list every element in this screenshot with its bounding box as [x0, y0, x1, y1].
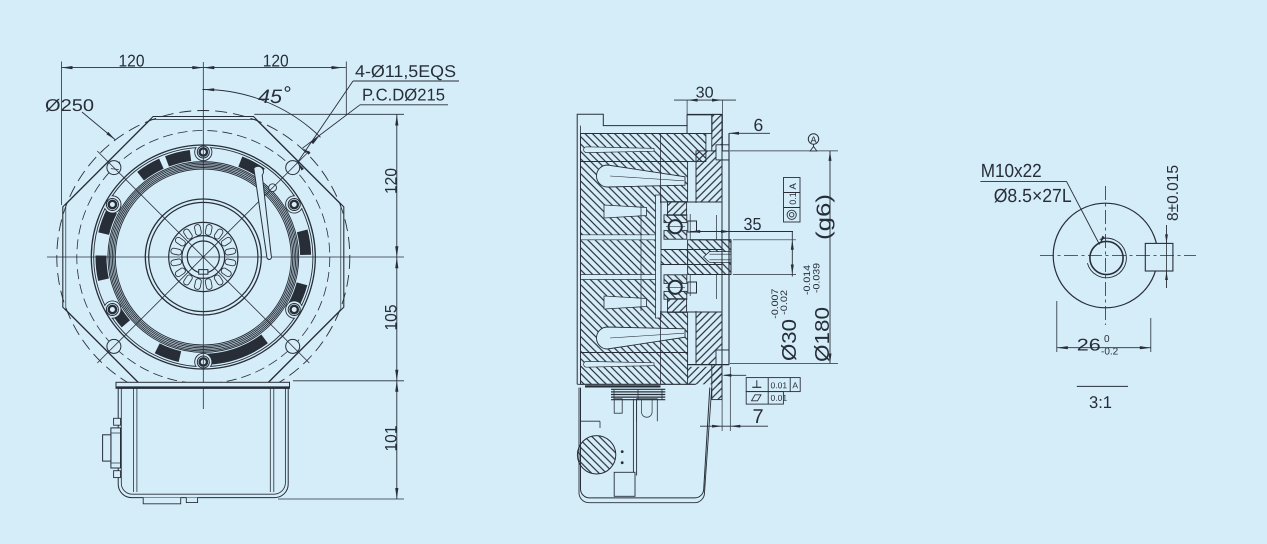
svg-text:45: 45 — [258, 86, 282, 108]
svg-text:35: 35 — [743, 214, 761, 234]
svg-text:7: 7 — [752, 406, 763, 428]
svg-text:-0.039: -0.039 — [811, 263, 822, 293]
svg-text:Ø8.5×27L: Ø8.5×27L — [994, 186, 1072, 207]
svg-text:101: 101 — [382, 426, 401, 452]
svg-text:0.01: 0.01 — [770, 380, 787, 390]
svg-text:(g6): (g6) — [814, 194, 836, 240]
svg-text:A: A — [792, 380, 798, 390]
svg-text:4-Ø11,5EQS: 4-Ø11,5EQS — [355, 62, 456, 81]
svg-text:0: 0 — [1104, 334, 1110, 345]
svg-text:105: 105 — [382, 305, 401, 331]
svg-text:Ø250: Ø250 — [45, 96, 94, 115]
svg-text:120: 120 — [263, 51, 289, 70]
svg-text:-0.02: -0.02 — [779, 290, 790, 315]
svg-text:Ø30: Ø30 — [779, 319, 801, 361]
svg-text:0.1: 0.1 — [788, 192, 798, 205]
svg-text:P.C.DØ215: P.C.DØ215 — [362, 86, 445, 105]
svg-text:120: 120 — [382, 168, 401, 194]
svg-text:-0.2: -0.2 — [1101, 347, 1119, 358]
svg-text:M10x22: M10x22 — [981, 161, 1042, 182]
svg-text:30: 30 — [696, 85, 714, 102]
svg-text:6: 6 — [753, 115, 763, 135]
svg-text:120: 120 — [118, 51, 144, 70]
svg-text:26: 26 — [1077, 336, 1101, 355]
svg-text:A: A — [788, 183, 799, 190]
svg-text:8±0.015: 8±0.015 — [1165, 165, 1182, 221]
svg-text:Ø180: Ø180 — [812, 307, 834, 362]
svg-text:0.01: 0.01 — [770, 393, 787, 403]
svg-text:3:1: 3:1 — [1089, 393, 1112, 412]
